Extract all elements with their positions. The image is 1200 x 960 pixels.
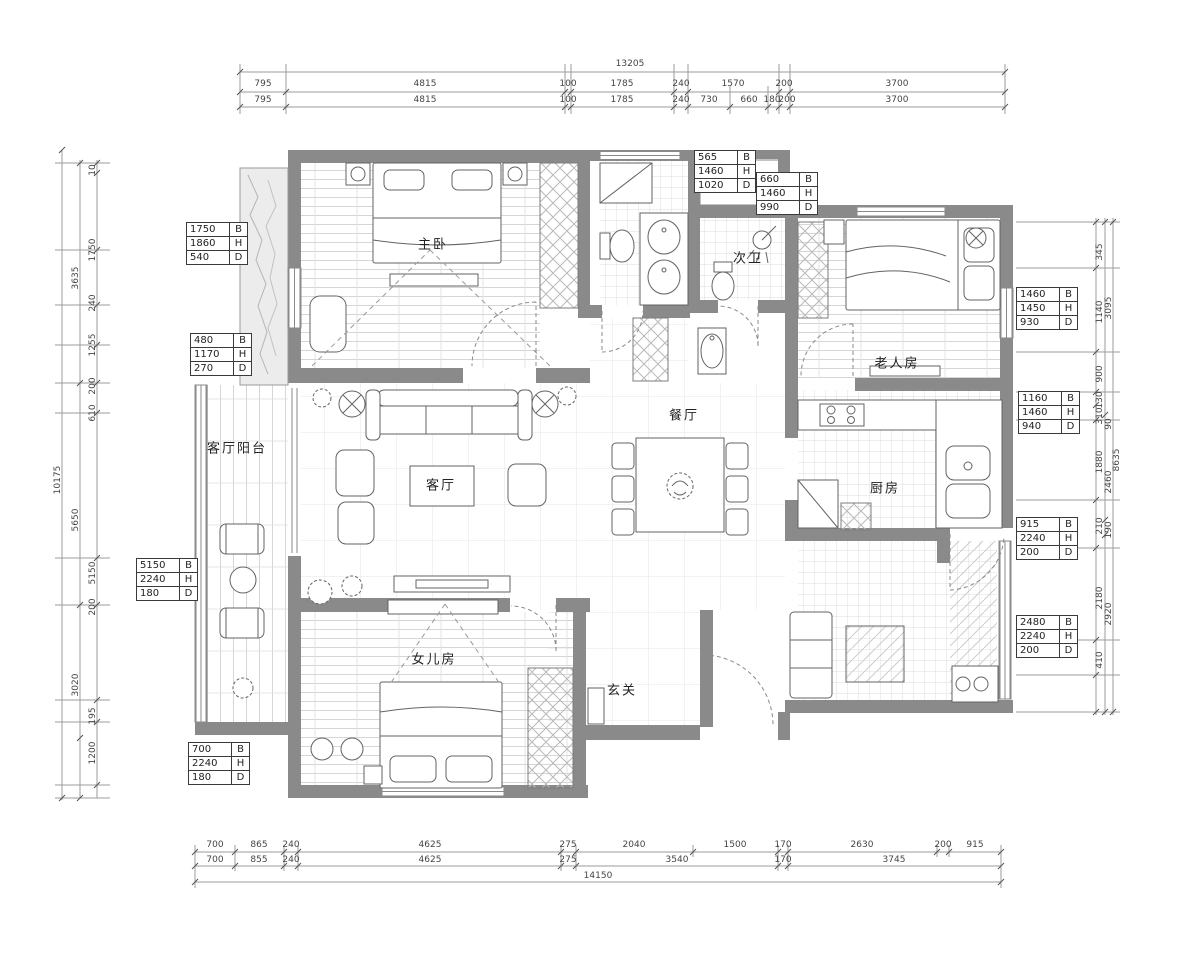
dim-left: 1750 <box>88 239 98 262</box>
window-right-upper <box>1000 288 1013 338</box>
room-label-dining: 餐厅 <box>669 405 699 424</box>
dim-bottom: 4625 <box>419 855 442 865</box>
dim-left: 5150 <box>88 562 98 585</box>
spec-unit: H <box>231 757 249 770</box>
spec-unit: H <box>229 237 247 250</box>
dim-top: 1785 <box>611 95 634 105</box>
floorplan-canvas <box>0 0 1200 960</box>
dim-left: 1200 <box>88 742 98 765</box>
dim-right: 310 <box>1095 407 1105 424</box>
spec-unit: H <box>737 165 755 178</box>
window-master-left <box>288 268 301 328</box>
dim-top: 3700 <box>886 95 909 105</box>
room-label-kitchen: 厨房 <box>870 478 900 497</box>
slider-balcony-living <box>292 388 297 553</box>
dim-top: 660 <box>740 95 757 105</box>
dim-bottom: 700 <box>206 840 223 850</box>
dim-right: 130 <box>1095 391 1105 408</box>
spec-box-right-1: 1460B 1450H 930D <box>1016 287 1078 330</box>
dim-left-total: 10175 <box>53 466 63 495</box>
spec-value: 1460 <box>1019 406 1061 419</box>
dim-right: 345 <box>1095 243 1105 260</box>
spec-box-curtain-left-top: 1750B 1860H 540D <box>186 222 248 265</box>
tv-unit <box>394 576 510 592</box>
spec-unit: H <box>233 348 251 361</box>
dim-right: 2460 <box>1104 471 1114 494</box>
spec-value: 2480 <box>1017 616 1059 629</box>
spec-value: 200 <box>1017 644 1059 657</box>
dim-right: 1140 <box>1095 301 1105 324</box>
spec-value: 1020 <box>695 179 737 192</box>
spec-unit: H <box>1061 406 1079 419</box>
spec-unit: H <box>1059 532 1077 545</box>
dim-bottom: 855 <box>250 855 267 865</box>
dining-set <box>612 438 748 535</box>
spec-unit: B <box>1059 616 1077 629</box>
dim-bottom: 2040 <box>623 840 646 850</box>
floor-plan-page: 主卧 次卫 老人房 餐厅 客厅阳台 客厅 厨房 女儿房 玄关 13205 795… <box>0 0 1200 960</box>
spec-value: 930 <box>1017 316 1059 329</box>
dim-bottom: 170 <box>774 840 791 850</box>
kitchen-cabinet <box>841 503 871 530</box>
dim-top: 4815 <box>414 79 437 89</box>
spec-value: 2240 <box>189 757 231 770</box>
spec-value: 660 <box>757 173 799 186</box>
dim-left: 200 <box>88 598 98 615</box>
dim-left: 10 <box>88 164 98 175</box>
dim-left: 240 <box>88 294 98 311</box>
dim-right: 1880 <box>1095 451 1105 474</box>
spec-value: 200 <box>1017 546 1059 559</box>
spec-unit: D <box>179 587 197 600</box>
dim-top: 730 <box>700 95 717 105</box>
spec-value: 1750 <box>187 223 229 236</box>
dim-right: 2920 <box>1104 603 1114 626</box>
spec-value: 2240 <box>1017 630 1059 643</box>
spec-value: 1170 <box>191 348 233 361</box>
spec-unit: H <box>1059 302 1077 315</box>
dim-top: 1570 <box>722 79 745 89</box>
spec-box-right-2: 1160B 1460H 940D <box>1018 391 1080 434</box>
spec-unit: B <box>1059 288 1077 301</box>
spec-value: 940 <box>1019 420 1061 433</box>
spec-box-balcony: 5150B 2240H 180D <box>136 558 198 601</box>
dim-bottom: 240 <box>282 855 299 865</box>
dim-right: 2180 <box>1095 587 1105 610</box>
spec-unit: B <box>229 223 247 236</box>
spec-unit: D <box>231 771 249 784</box>
spec-unit: B <box>799 173 817 186</box>
dim-right: 90 <box>1104 418 1114 429</box>
spec-value: 1460 <box>757 187 799 200</box>
spec-unit: B <box>1059 518 1077 531</box>
spec-value: 990 <box>757 201 799 214</box>
dim-top: 1785 <box>611 79 634 89</box>
elder-nightstand <box>824 220 844 244</box>
spec-unit: H <box>799 187 817 200</box>
shoe-cabinet <box>588 688 604 724</box>
spec-value: 270 <box>191 362 233 375</box>
dim-left: 610 <box>88 404 98 421</box>
dim-right: 900 <box>1095 365 1105 382</box>
spec-unit: D <box>1059 546 1077 559</box>
hall-cabinet <box>633 318 668 381</box>
dim-top: 100 <box>559 95 576 105</box>
spec-value: 540 <box>187 251 229 264</box>
dim-top: 795 <box>254 79 271 89</box>
spec-unit: D <box>1059 644 1077 657</box>
spec-box-left-bottom: 700B 2240H 180D <box>188 742 250 785</box>
daughter-wardrobe <box>528 668 573 788</box>
dim-bottom: 1500 <box>724 840 747 850</box>
dim-top: 3700 <box>886 79 909 89</box>
room-label-foyer: 玄关 <box>607 680 637 699</box>
spec-value: 1160 <box>1019 392 1061 405</box>
spec-value: 5150 <box>137 559 179 572</box>
dim-top: 100 <box>559 79 576 89</box>
spec-unit: D <box>1061 420 1079 433</box>
window-elder-top <box>857 206 945 217</box>
spec-value: 1860 <box>187 237 229 250</box>
spec-value: 1460 <box>1017 288 1059 301</box>
dim-left: 3635 <box>71 267 81 290</box>
master-wardrobe <box>540 163 578 308</box>
room-label-daughter: 女儿房 <box>411 649 456 668</box>
window-utility-right <box>999 541 1011 699</box>
dim-left: 1255 <box>88 334 98 357</box>
room-label-second-bath: 次卫 <box>733 248 763 267</box>
dim-top: 240 <box>672 95 689 105</box>
dim-left: 5650 <box>71 509 81 532</box>
dim-right: 190 <box>1104 521 1114 538</box>
dim-bottom: 275 <box>559 855 576 865</box>
spec-unit: B <box>737 151 755 164</box>
room-label-elder: 老人房 <box>874 353 919 372</box>
dim-bottom: 4625 <box>419 840 442 850</box>
dim-bottom: 3745 <box>883 855 906 865</box>
spec-value: 180 <box>189 771 231 784</box>
daughter-bed <box>380 682 502 788</box>
dim-bottom: 240 <box>282 840 299 850</box>
spec-box-right-4: 2480B 2240H 200D <box>1016 615 1078 658</box>
dim-left: 195 <box>88 707 98 724</box>
dim-right: 210 <box>1095 517 1105 534</box>
spec-value: 700 <box>189 743 231 756</box>
spec-unit: H <box>1059 630 1077 643</box>
dim-bottom: 170 <box>774 855 791 865</box>
spec-unit: B <box>231 743 249 756</box>
spec-unit: D <box>233 362 251 375</box>
dim-bottom: 700 <box>206 855 223 865</box>
spec-unit: H <box>179 573 197 586</box>
spec-unit: B <box>1061 392 1079 405</box>
spec-value: 915 <box>1017 518 1059 531</box>
master-chaise <box>310 296 346 352</box>
room-label-master: 主卧 <box>418 234 448 253</box>
dim-top: 795 <box>254 95 271 105</box>
dim-bottom: 275 <box>559 840 576 850</box>
spec-unit: D <box>737 179 755 192</box>
room-label-living-balcony: 客厅阳台 <box>207 438 267 457</box>
dim-top-total: 13205 <box>616 59 645 69</box>
dim-right-total: 8635 <box>1112 449 1122 472</box>
dim-top: 240 <box>672 79 689 89</box>
dim-right: 3095 <box>1104 297 1114 320</box>
spec-unit: B <box>179 559 197 572</box>
spec-box-top-mid-2: 660B 1460H 990D <box>756 172 818 215</box>
spec-value: 565 <box>695 151 737 164</box>
corridor-basin <box>698 328 726 374</box>
spec-box-right-3: 915B 2240H 200D <box>1016 517 1078 560</box>
dim-bottom: 915 <box>966 840 983 850</box>
dim-right: 410 <box>1095 651 1105 668</box>
dim-left: 200 <box>88 377 98 394</box>
spec-value: 1460 <box>695 165 737 178</box>
dim-top: 200 <box>778 95 795 105</box>
spec-unit: D <box>799 201 817 214</box>
spec-box-top-mid-1: 565B 1460H 1020D <box>694 150 756 193</box>
dim-bottom: 200 <box>934 840 951 850</box>
dim-top: 200 <box>775 79 792 89</box>
spec-value: 180 <box>137 587 179 600</box>
room-label-living: 客厅 <box>426 475 456 494</box>
spec-value: 480 <box>191 334 233 347</box>
dim-top: 4815 <box>414 95 437 105</box>
spec-unit: B <box>233 334 251 347</box>
spec-unit: D <box>229 251 247 264</box>
spec-box-left-mid: 480B 1170H 270D <box>190 333 252 376</box>
spec-value: 1450 <box>1017 302 1059 315</box>
window-bath-top <box>600 151 680 160</box>
dim-bottom: 2630 <box>851 840 874 850</box>
spec-value: 2240 <box>137 573 179 586</box>
spec-unit: D <box>1059 316 1077 329</box>
dim-bottom: 865 <box>250 840 267 850</box>
dim-left: 3020 <box>71 674 81 697</box>
window-balcony-left <box>195 385 207 722</box>
dim-bottom: 3540 <box>666 855 689 865</box>
elder-ceiling-lamp <box>966 228 986 248</box>
entry-door-swing <box>703 655 773 725</box>
spec-value: 2240 <box>1017 532 1059 545</box>
dim-bottom-total: 14150 <box>584 871 613 881</box>
